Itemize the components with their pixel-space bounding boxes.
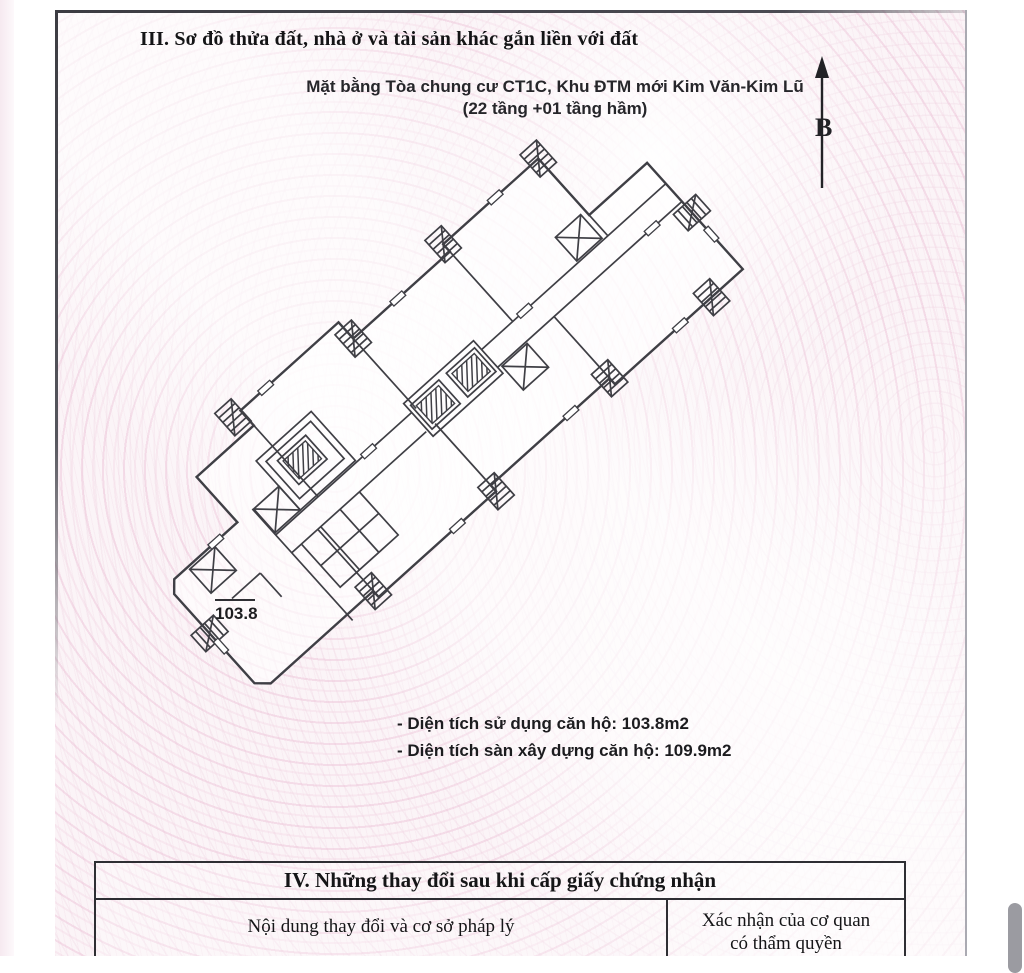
unit-area-label: 103.8	[215, 604, 261, 624]
north-arrowhead	[815, 56, 829, 78]
col2-header: Xác nhận của cơ quan có thẩm quyền	[668, 900, 904, 956]
plan-note-line1: - Diện tích sử dụng căn hộ: 103.8m2	[397, 710, 731, 737]
north-arrow: B	[807, 56, 837, 196]
scrollbar-thumb[interactable]	[1008, 903, 1022, 973]
photo-left-margin	[0, 0, 14, 956]
changes-table-title: IV. Những thay đổi sau khi cấp giấy chứn…	[96, 863, 904, 900]
section3-title: III. Sơ đồ thửa đất, nhà ở và tài sản kh…	[140, 28, 638, 51]
page-edge-top	[55, 10, 967, 13]
unit-area-dimension: 103.8	[215, 599, 261, 624]
building-outline	[100, 85, 764, 715]
changes-table: IV. Những thay đổi sau khi cấp giấy chứn…	[94, 861, 906, 956]
north-label: B	[815, 113, 832, 142]
col2-header-line1: Xác nhận của cơ quan	[668, 909, 904, 932]
page-edge-left	[55, 10, 58, 956]
col1-header: Nội dung thay đổi và cơ sở pháp lý	[96, 900, 668, 956]
dimension-line	[215, 599, 255, 601]
page-edge-right	[965, 10, 967, 956]
plan-note-line2: - Diện tích sàn xây dựng căn hộ: 109.9m2	[397, 737, 731, 764]
floor-plan	[100, 85, 790, 715]
certificate-page: III. Sơ đồ thửa đất, nhà ở và tài sản kh…	[55, 10, 967, 956]
col2-header-line2: có thẩm quyền	[668, 932, 904, 955]
plan-notes: - Diện tích sử dụng căn hộ: 103.8m2 - Di…	[397, 710, 731, 764]
